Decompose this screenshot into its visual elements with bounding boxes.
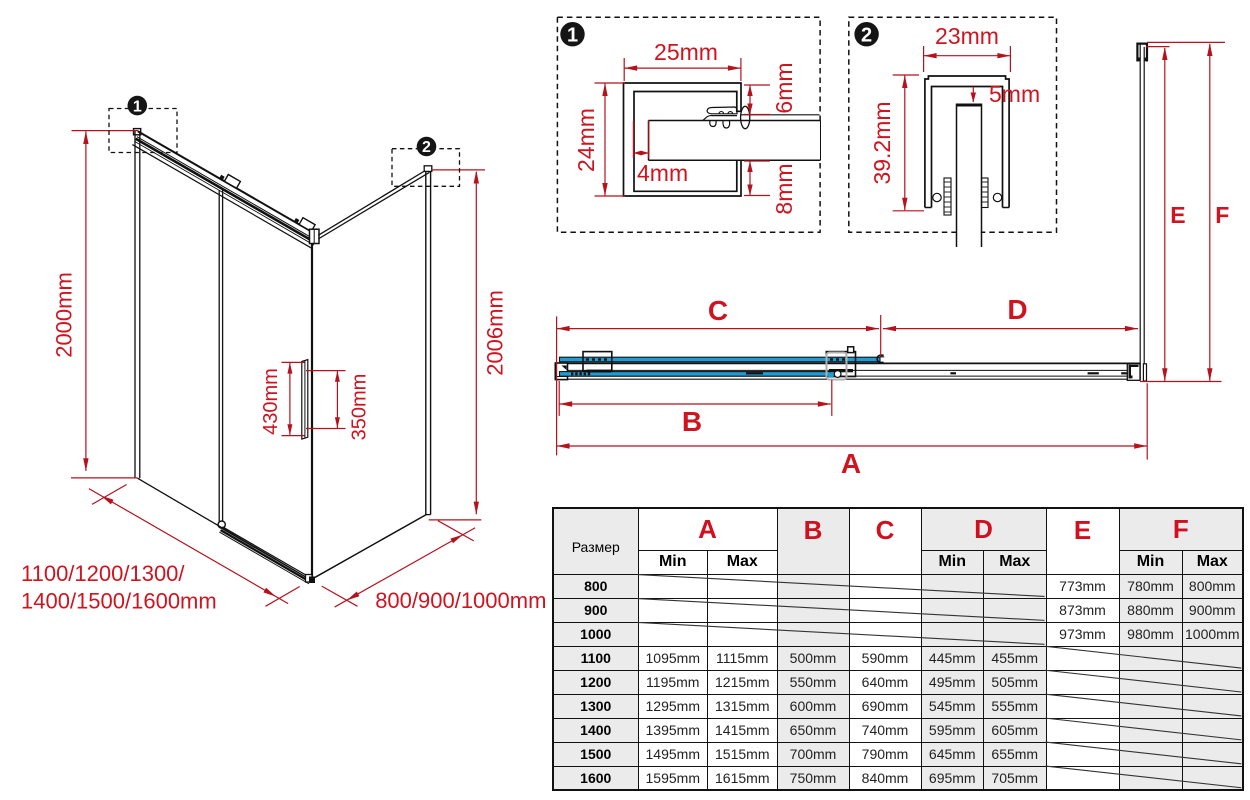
svg-text:2000mm: 2000mm: [52, 272, 77, 358]
svg-text:800/900/1000mm: 800/900/1000mm: [375, 588, 546, 613]
svg-text:2: 2: [422, 139, 431, 156]
svg-text:1: 1: [567, 24, 578, 46]
svg-text:6mm: 6mm: [771, 62, 797, 113]
svg-text:C: C: [708, 295, 728, 326]
svg-text:8mm: 8mm: [771, 163, 797, 214]
svg-text:1400/1500/1600mm: 1400/1500/1600mm: [21, 589, 217, 614]
svg-text:1: 1: [133, 98, 142, 115]
svg-text:D: D: [1007, 294, 1027, 325]
svg-text:350mm: 350mm: [349, 374, 371, 441]
svg-text:B: B: [682, 406, 702, 437]
svg-text:A: A: [841, 448, 861, 479]
svg-text:430mm: 430mm: [260, 368, 282, 435]
svg-text:2006mm: 2006mm: [483, 290, 508, 376]
svg-text:23mm: 23mm: [935, 23, 999, 49]
svg-text:5mm: 5mm: [989, 81, 1040, 107]
svg-text:39.2mm: 39.2mm: [869, 101, 895, 184]
svg-text:1100/1200/1300/: 1100/1200/1300/: [21, 561, 185, 586]
svg-text:24mm: 24mm: [573, 108, 599, 172]
svg-text:4mm: 4mm: [637, 160, 688, 186]
svg-text:E: E: [1170, 202, 1185, 228]
svg-text:F: F: [1215, 202, 1229, 228]
svg-text:25mm: 25mm: [654, 39, 718, 65]
svg-text:2: 2: [861, 24, 872, 46]
